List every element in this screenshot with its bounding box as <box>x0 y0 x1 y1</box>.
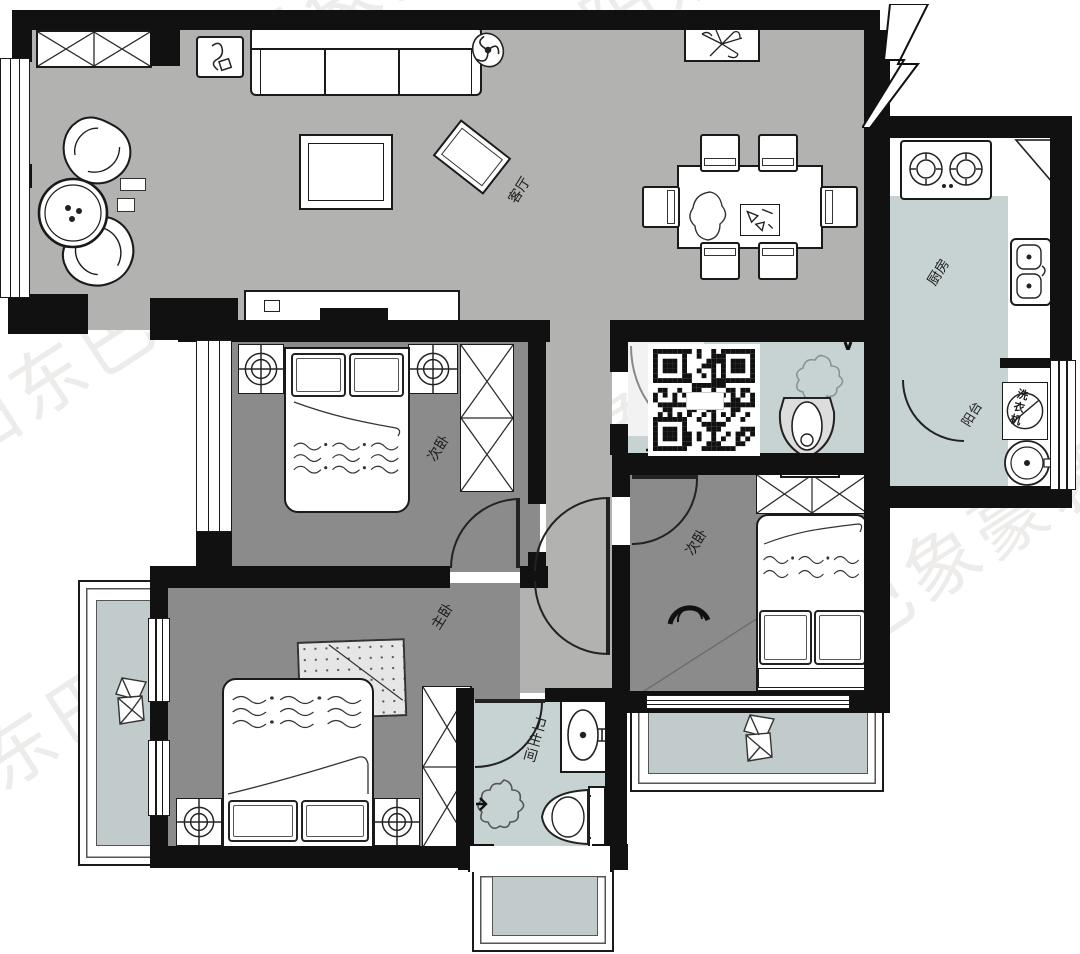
window <box>646 695 850 709</box>
floor-plan: 衡阳东巴象豪装工厂店 衡阳东巴象豪装工厂店 衡阳东巴象豪装工厂店 衡阳东巴象豪装… <box>0 0 1080 954</box>
door-leaf <box>475 699 545 703</box>
furniture-tag <box>117 198 135 212</box>
wall <box>864 473 890 713</box>
window <box>148 618 170 702</box>
balcony-basin <box>1002 438 1052 488</box>
entry-closet <box>36 30 152 68</box>
pillow <box>301 800 369 842</box>
wall <box>456 688 474 848</box>
tv-cabinet <box>244 290 460 322</box>
bay-flower-icon <box>736 708 784 770</box>
window <box>196 340 232 532</box>
wardrobe <box>460 344 514 492</box>
dining-chair <box>700 242 740 280</box>
table-tray <box>740 204 780 236</box>
pillow <box>291 353 346 397</box>
bed-fold <box>292 398 404 438</box>
pillow <box>759 610 812 665</box>
wall <box>8 294 88 334</box>
window <box>0 58 30 298</box>
vase-icon <box>198 38 242 76</box>
wall <box>12 10 880 30</box>
bottom-balcony-glass <box>492 876 598 936</box>
bed-fold <box>226 750 372 800</box>
side-table <box>36 176 110 250</box>
headboard <box>758 668 866 688</box>
wall-pier <box>196 530 232 572</box>
nightstand <box>408 344 458 394</box>
quilt-stitch <box>760 552 864 596</box>
tv-receiver <box>320 308 388 320</box>
balcony-door-band <box>468 846 612 872</box>
balcony-divider <box>1000 358 1052 368</box>
wall <box>178 320 550 342</box>
dining-chair <box>642 186 680 228</box>
wall <box>150 26 180 66</box>
nightstand <box>238 344 284 394</box>
wall <box>150 566 450 588</box>
qr-center-label <box>686 392 724 410</box>
quilt-stitch <box>228 692 368 736</box>
wall <box>880 486 1072 508</box>
nightstand <box>176 798 222 846</box>
furniture-tag <box>120 178 146 191</box>
door-leaf <box>516 498 520 568</box>
quilt-stitch <box>290 438 404 482</box>
window <box>148 740 170 816</box>
plant-icon <box>474 774 534 842</box>
wall <box>612 545 630 693</box>
dining-chair <box>700 134 740 172</box>
nightstand <box>374 798 420 846</box>
wall <box>610 424 628 455</box>
wardrobe <box>756 474 868 514</box>
dining-chair <box>758 134 798 172</box>
wall <box>610 342 628 372</box>
dining-chair <box>758 242 798 280</box>
lamp-icon <box>409 345 457 393</box>
bed-fold <box>760 520 864 550</box>
wall <box>605 693 627 848</box>
lamp-icon <box>239 345 283 393</box>
kitchen-sink <box>1010 238 1052 306</box>
bathroom-sink <box>560 697 610 773</box>
door-leaf <box>632 475 698 479</box>
wall <box>150 846 482 868</box>
dining-chair <box>820 186 858 228</box>
kitchen-floor <box>888 196 1008 490</box>
toilet <box>534 786 592 848</box>
fan-icon <box>464 28 512 72</box>
wall <box>150 566 168 620</box>
sofa <box>250 26 482 96</box>
wall <box>12 10 32 62</box>
plant-console <box>684 26 760 62</box>
wall <box>1050 116 1072 362</box>
pillow <box>814 610 866 665</box>
door-leaf <box>606 497 610 655</box>
lamp-icon <box>177 799 221 845</box>
plant-icon <box>686 28 758 60</box>
coffee-table <box>299 134 393 210</box>
qr-code <box>648 344 760 456</box>
burners <box>902 142 990 198</box>
wall <box>150 700 168 742</box>
pillow <box>228 800 298 842</box>
window <box>1050 360 1076 490</box>
gas-stove <box>900 140 992 200</box>
table-plant-icon <box>688 188 732 246</box>
wall <box>612 453 890 475</box>
wall-break-icon <box>862 4 958 128</box>
wall <box>612 475 630 497</box>
wall <box>864 120 890 324</box>
entry-cabinet <box>196 36 244 78</box>
lamp-icon <box>375 799 419 845</box>
fan-heater-icon <box>664 588 714 628</box>
pillow <box>349 353 404 397</box>
fixture-icon <box>836 332 860 350</box>
wall <box>528 342 546 504</box>
